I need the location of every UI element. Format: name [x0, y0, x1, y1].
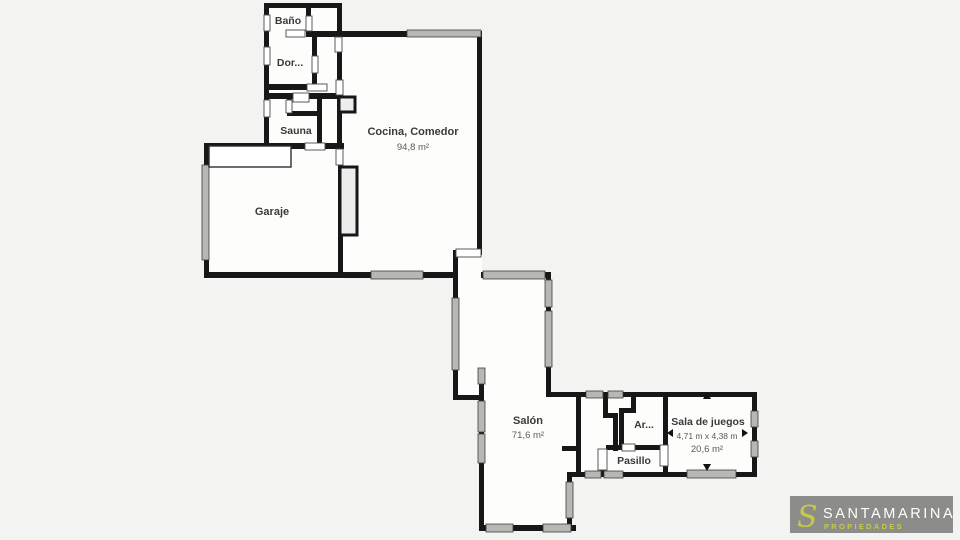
label-bano: Baño	[275, 15, 301, 27]
label-pasillo: Pasillo	[617, 455, 651, 467]
fixture-box-small	[339, 97, 355, 112]
label-sala-juegos: Sala de juegos	[671, 416, 745, 428]
floorplan-page: Baño Dor... Sauna Cocina, Comedor 94,8 m…	[0, 0, 960, 540]
label-sauna: Sauna	[280, 125, 312, 137]
room-cocina-fill	[336, 31, 482, 278]
area-sala-juegos: 20,6 m²	[691, 444, 723, 455]
label-garaje: Garaje	[255, 206, 289, 218]
label-armario: Ar...	[634, 419, 654, 431]
room-salon-fill	[455, 250, 668, 531]
floorplan-drawing: Baño Dor... Sauna Cocina, Comedor 94,8 m…	[0, 0, 960, 540]
logo-brand-name: SANTAMARINA	[823, 506, 955, 522]
fixture-box-tall	[340, 167, 357, 235]
label-dormitorio: Dor...	[277, 57, 303, 69]
area-salon: 71,6 m²	[512, 430, 544, 441]
logo-monogram-icon: S	[797, 500, 818, 535]
label-cocina: Cocina, Comedor	[367, 126, 459, 138]
dimensions-sala-juegos: 4,71 m x 4,38 m	[677, 431, 738, 441]
area-cocina: 94,8 m²	[397, 142, 429, 153]
garage-door	[209, 146, 291, 167]
label-salon: Salón	[513, 415, 543, 427]
agency-logo: S SANTAMARINA PROPIEDADES	[790, 496, 955, 535]
logo-tagline: PROPIEDADES	[824, 522, 904, 531]
